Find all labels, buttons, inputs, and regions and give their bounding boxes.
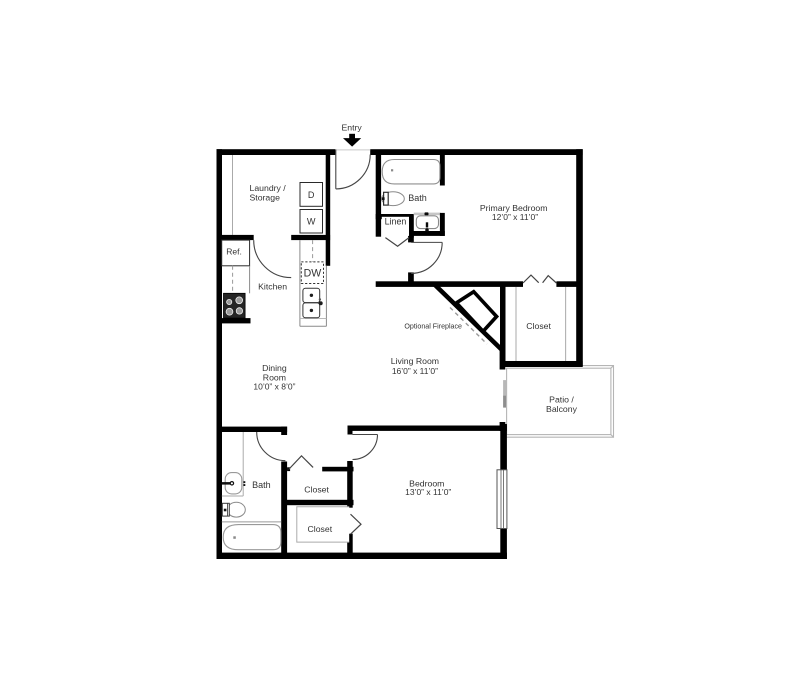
svg-text:10’0” x 8’0”: 10’0” x 8’0” xyxy=(253,382,295,392)
svg-text:W: W xyxy=(307,217,316,227)
svg-text:Kitchen: Kitchen xyxy=(258,281,287,291)
svg-text:16’0” x 11’0”: 16’0” x 11’0” xyxy=(392,366,438,376)
svg-text:Bath: Bath xyxy=(408,193,427,203)
svg-text:Closet: Closet xyxy=(307,524,332,534)
svg-text:Ref.: Ref. xyxy=(226,246,242,256)
svg-text:Storage: Storage xyxy=(250,192,281,202)
svg-text:Optional Fireplace: Optional Fireplace xyxy=(404,322,462,330)
svg-text:Entry: Entry xyxy=(341,122,362,132)
svg-text:DW: DW xyxy=(304,268,322,280)
svg-text:Patio /: Patio / xyxy=(549,395,574,405)
svg-text:D: D xyxy=(308,190,315,200)
svg-text:Closet: Closet xyxy=(304,484,329,494)
svg-text:Balcony: Balcony xyxy=(546,404,578,414)
svg-text:Bath: Bath xyxy=(252,480,271,490)
svg-text:Closet: Closet xyxy=(526,321,551,331)
svg-text:Laundry /: Laundry / xyxy=(250,183,287,193)
svg-text:Living Room: Living Room xyxy=(391,356,439,366)
svg-text:Linen: Linen xyxy=(385,217,407,227)
svg-text:13’0” x 11’0”: 13’0” x 11’0” xyxy=(405,487,451,497)
svg-text:12’0” x 11’0”: 12’0” x 11’0” xyxy=(492,212,538,222)
